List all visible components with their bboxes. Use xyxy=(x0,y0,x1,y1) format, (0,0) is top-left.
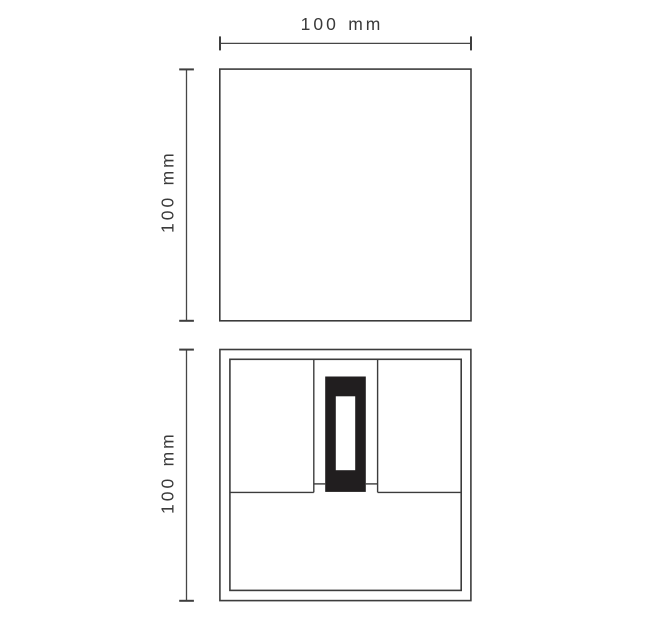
svg-text:100 mm: 100 mm xyxy=(301,14,384,34)
svg-text:100 mm: 100 mm xyxy=(158,150,178,233)
svg-text:100 mm: 100 mm xyxy=(158,431,178,514)
